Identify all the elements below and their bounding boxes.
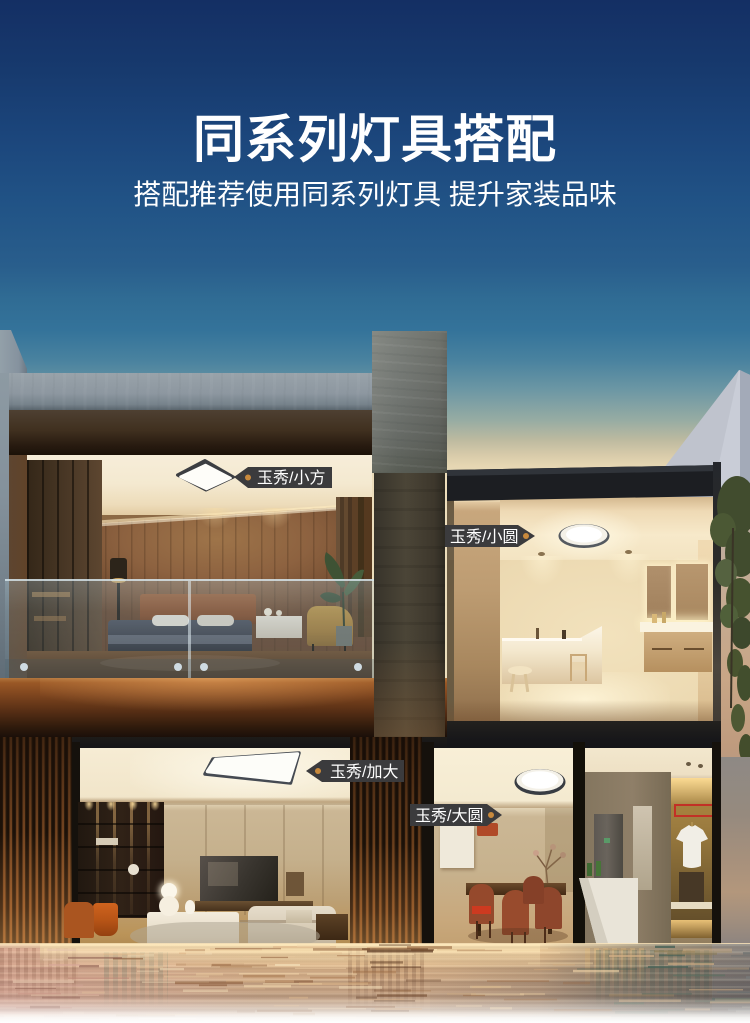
svg-text:玉秀/小圆: 玉秀/小圆 bbox=[450, 528, 518, 546]
svg-text:玉秀/小方: 玉秀/小方 bbox=[257, 469, 325, 487]
svg-text:玉秀/大圆: 玉秀/大圆 bbox=[415, 807, 483, 825]
svg-text:玉秀/加大: 玉秀/加大 bbox=[330, 763, 398, 781]
